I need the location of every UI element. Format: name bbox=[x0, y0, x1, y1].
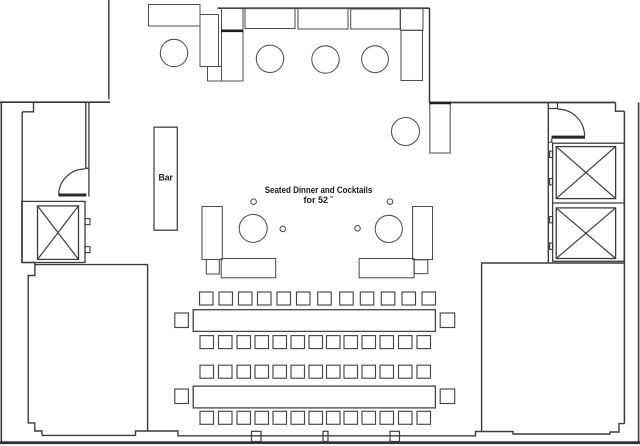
svg-text:Bar: Bar bbox=[158, 173, 173, 183]
svg-text:for 52 ˘: for 52 ˘ bbox=[304, 194, 334, 205]
